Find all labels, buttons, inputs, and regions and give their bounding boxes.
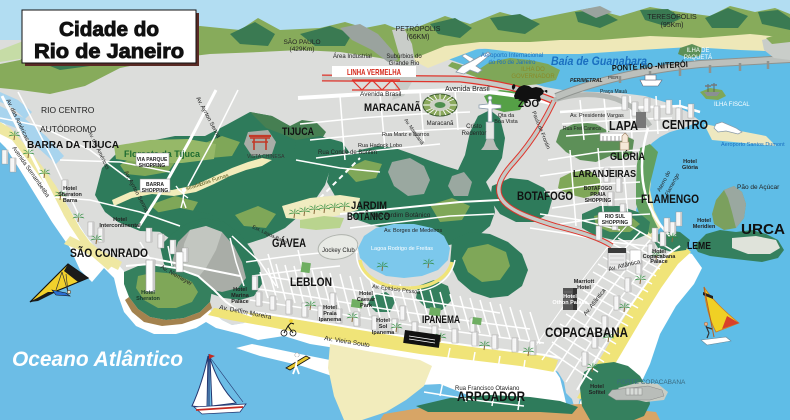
svg-text:Redentor: Redentor (462, 131, 487, 137)
svg-text:BARRA DA TIJUCA: BARRA DA TIJUCA (27, 139, 119, 151)
svg-text:SHOPPING: SHOPPING (602, 220, 629, 226)
svg-text:URCA: URCA (741, 221, 785, 238)
svg-text:Rua Jardim Botânico: Rua Jardim Botânico (370, 212, 431, 219)
svg-text:SÃO CONRADO: SÃO CONRADO (70, 247, 148, 260)
svg-text:VISTA CHINESA: VISTA CHINESA (247, 154, 285, 160)
svg-text:CENTRO: CENTRO (662, 117, 708, 132)
svg-text:Ipanema: Ipanema (319, 317, 342, 323)
svg-text:Rua Frei Caneca: Rua Frei Caneca (563, 126, 601, 132)
svg-text:SHOPPING: SHOPPING (139, 163, 166, 169)
svg-text:Aeroporto Internacional: Aeroporto Internacional (481, 53, 543, 59)
svg-text:Rio de Janeiro: Rio de Janeiro (34, 41, 184, 63)
svg-text:Lagoa Rodrigo de Freitas: Lagoa Rodrigo de Freitas (371, 246, 433, 252)
svg-text:GOVERNADOR: GOVERNADOR (511, 74, 555, 80)
svg-text:Cidade do: Cidade do (59, 19, 159, 41)
svg-text:Meridien: Meridien (693, 224, 716, 230)
svg-text:SHOPPING: SHOPPING (142, 188, 169, 194)
svg-text:Hotel: Hotel (577, 285, 591, 291)
svg-text:Av. Borges de Medeiros: Av. Borges de Medeiros (384, 228, 442, 234)
svg-text:PETRÓPOLIS: PETRÓPOLIS (396, 24, 441, 33)
svg-text:Othon Palace: Othon Palace (552, 300, 587, 306)
svg-text:Barra: Barra (63, 198, 78, 204)
svg-text:Park: Park (360, 303, 373, 309)
svg-text:PIER: PIER (608, 75, 619, 80)
svg-text:Sheraton: Sheraton (136, 296, 160, 302)
svg-text:IPANEMA: IPANEMA (422, 314, 460, 326)
svg-text:LEBLON: LEBLON (290, 275, 332, 289)
svg-text:TIJUCA: TIJUCA (282, 126, 314, 138)
svg-text:LARANJEIRAS: LARANJEIRAS (573, 168, 636, 180)
svg-text:Av. Presidente Vargas: Av. Presidente Vargas (570, 113, 624, 119)
svg-text:Praça Mauá: Praça Mauá (600, 89, 627, 95)
svg-text:Jockey Club: Jockey Club (322, 248, 355, 254)
svg-text:SHOPPING: SHOPPING (585, 198, 612, 204)
svg-text:do Rio de Janeiro: do Rio de Janeiro (488, 60, 536, 66)
svg-text:Subúrbios do: Subúrbios do (386, 54, 422, 60)
svg-text:Rua Mariz e Barros: Rua Mariz e Barros (382, 132, 430, 138)
svg-text:Pão de Açúcar: Pão de Açúcar (737, 184, 780, 191)
svg-text:Intercontinental: Intercontinental (99, 223, 141, 229)
svg-text:LEME: LEME (687, 241, 711, 252)
svg-text:FORTE COPACABANA: FORTE COPACABANA (617, 379, 686, 386)
svg-text:(429Km): (429Km) (290, 46, 315, 53)
svg-text:Maracanã: Maracanã (427, 121, 454, 127)
svg-text:SÃO PAULO: SÃO PAULO (283, 37, 320, 46)
svg-text:Boa Vista: Boa Vista (494, 119, 518, 125)
svg-text:Palace: Palace (650, 259, 667, 265)
svg-text:ZOO: ZOO (518, 98, 539, 110)
svg-text:Cristo: Cristo (466, 124, 482, 130)
svg-text:ILHA DE: ILHA DE (686, 48, 709, 54)
svg-text:LINHA VERMELHA: LINHA VERMELHA (347, 67, 401, 77)
svg-text:PAQUETÁ: PAQUETÁ (684, 54, 712, 61)
svg-text:ILHA FISCAL: ILHA FISCAL (714, 102, 750, 108)
svg-text:Avenida Brasil: Avenida Brasil (360, 91, 402, 98)
svg-text:Oceano Atlântico: Oceano Atlântico (12, 348, 183, 371)
svg-text:TERESÓPOLIS: TERESÓPOLIS (647, 12, 697, 21)
svg-text:PERIMETRAL: PERIMETRAL (570, 78, 603, 84)
svg-text:Rua Hadock Lobo: Rua Hadock Lobo (358, 143, 402, 149)
svg-text:Área Industrial: Área Industrial (333, 53, 372, 60)
svg-text:Palace: Palace (231, 299, 248, 305)
svg-text:COPACABANA: COPACABANA (545, 325, 628, 340)
svg-text:Avenida Brasil: Avenida Brasil (445, 86, 490, 93)
svg-text:Rua Francisco Otaviano: Rua Francisco Otaviano (455, 386, 520, 392)
svg-text:Ipanema: Ipanema (372, 330, 395, 336)
svg-text:ILHA DO: ILHA DO (521, 67, 545, 73)
svg-text:Aeroporto Santos Dumont: Aeroporto Santos Dumont (721, 142, 785, 148)
svg-text:Rua Conde de Bonfim: Rua Conde de Bonfim (318, 150, 377, 156)
svg-text:Baía de Guanabara: Baía de Guanabara (551, 54, 647, 68)
svg-text:(66KM): (66KM) (407, 34, 430, 41)
svg-text:Sofitel: Sofitel (589, 390, 606, 396)
svg-text:GLÓRIA: GLÓRIA (610, 150, 645, 163)
svg-text:(95Km): (95Km) (661, 22, 684, 29)
svg-text:LAPA: LAPA (609, 119, 638, 133)
svg-text:BOTAFOGO: BOTAFOGO (517, 191, 573, 203)
svg-text:Glória: Glória (682, 165, 699, 171)
svg-text:RIO CENTRO: RIO CENTRO (41, 105, 95, 115)
svg-text:MARACANÃ: MARACANÃ (364, 101, 421, 114)
